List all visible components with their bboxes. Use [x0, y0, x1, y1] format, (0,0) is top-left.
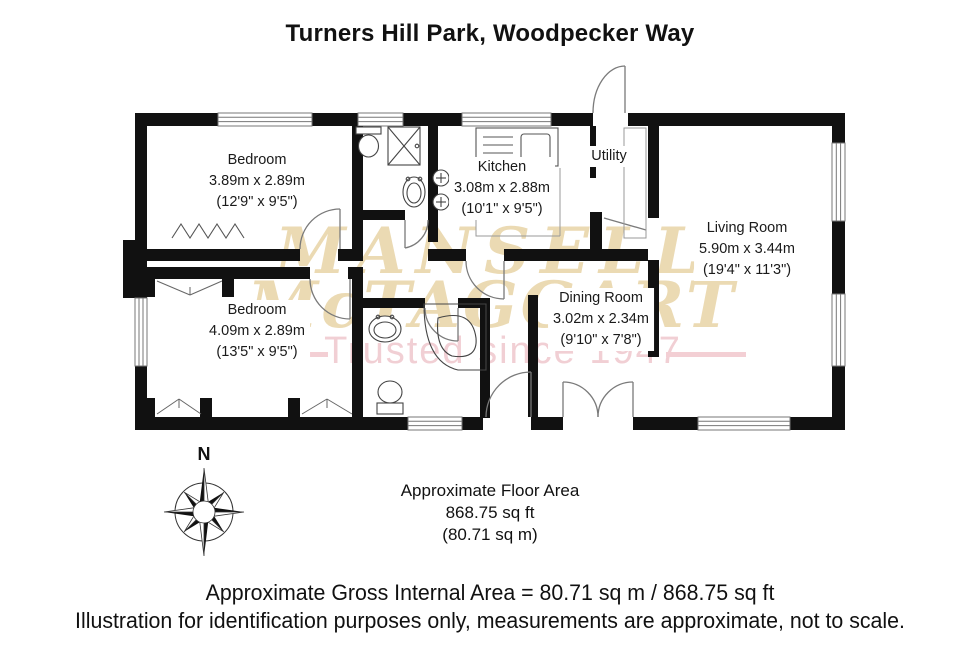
door-dining: [466, 261, 504, 299]
floorplan-drawing: [0, 0, 980, 653]
tagline-rules: [250, 352, 746, 357]
window: [698, 417, 790, 430]
room-name: Utility: [591, 146, 626, 167]
room-name: Living Room: [699, 218, 795, 239]
window: [462, 113, 551, 126]
room-name: Bedroom: [209, 300, 305, 321]
door-bathroom2: [425, 308, 458, 341]
door-living: [604, 218, 646, 230]
door-front: [486, 372, 531, 417]
utility-cupboard: [624, 128, 646, 238]
room-size-imperial: (9'10" x 7'8"): [553, 330, 649, 351]
window: [408, 417, 462, 430]
room-label-living: Living Room 5.90m x 3.44m (19'4" x 11'3"…: [694, 218, 800, 281]
radiator-zigzag: [172, 224, 244, 238]
window: [832, 294, 845, 366]
floor-area-note: Approximate Floor Area 868.75 sq ft (80.…: [401, 480, 580, 546]
room-label-kitchen: Kitchen 3.08m x 2.88m (10'1" x 9'5"): [449, 157, 555, 220]
door-bathroom1: [405, 220, 428, 248]
room-size-imperial: (12'9" x 9'5"): [209, 192, 305, 213]
door-bedroom2: [310, 279, 350, 319]
room-name: Bedroom: [209, 150, 305, 171]
bath2-basin-icon: [369, 315, 401, 342]
window: [832, 143, 845, 221]
room-label-bedroom2: Bedroom 4.09m x 2.89m (13'5" x 9'5"): [204, 300, 310, 363]
room-name: Dining Room: [553, 288, 649, 309]
window: [218, 113, 312, 126]
room-label-utility: Utility: [586, 146, 631, 167]
disclaimer: Illustration for identification purposes…: [15, 608, 966, 634]
door-bedroom1: [300, 209, 340, 249]
basin-icon: [403, 177, 425, 207]
compass-north-label: N: [198, 444, 211, 465]
window: [135, 298, 147, 366]
shower-icon: [388, 127, 420, 165]
window: [358, 113, 403, 126]
compass-icon: [164, 468, 244, 556]
room-label-dining: Dining Room 3.02m x 2.34m (9'10" x 7'8"): [548, 288, 654, 351]
floor-area-sqm: (80.71 sq m): [401, 524, 580, 546]
floor-area-title: Approximate Floor Area: [401, 480, 580, 502]
room-size-imperial: (10'1" x 9'5"): [454, 199, 550, 220]
room-size-metric: 4.09m x 2.89m: [209, 321, 305, 342]
room-size-metric: 3.08m x 2.88m: [454, 178, 550, 199]
room-size-imperial: (19'4" x 11'3"): [699, 260, 795, 281]
gross-internal-area: Approximate Gross Internal Area = 80.71 …: [15, 580, 966, 606]
room-size-metric: 5.90m x 3.44m: [699, 239, 795, 260]
room-label-bedroom1: Bedroom 3.89m x 2.89m (12'9" x 9'5"): [204, 150, 310, 213]
toilet2-icon: [377, 381, 403, 414]
room-size-metric: 3.89m x 2.89m: [209, 171, 305, 192]
room-size-imperial: (13'5" x 9'5"): [209, 342, 305, 363]
room-size-metric: 3.02m x 2.34m: [553, 309, 649, 330]
door-utility: [593, 66, 625, 113]
floorplan-page: Turners Hill Park, Woodpecker Way MANSEL…: [0, 0, 980, 653]
corner-bath-icon: [424, 304, 486, 370]
room-name: Kitchen: [454, 157, 550, 178]
floor-area-sqft: 868.75 sq ft: [401, 502, 580, 524]
door-french: [563, 382, 633, 417]
